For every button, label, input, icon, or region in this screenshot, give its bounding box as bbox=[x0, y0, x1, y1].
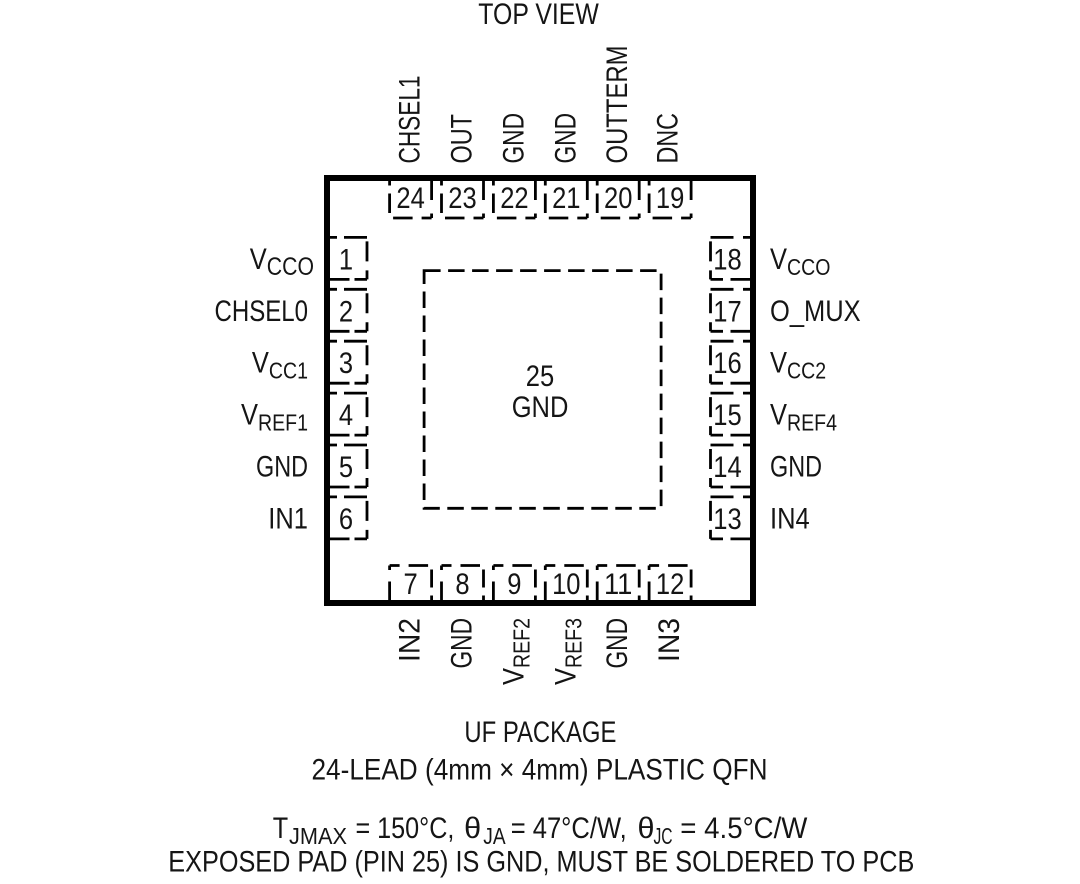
svg-text:GND: GND bbox=[549, 113, 582, 164]
svg-text:7: 7 bbox=[404, 568, 418, 601]
svg-text:GND: GND bbox=[512, 391, 569, 424]
svg-text:V: V bbox=[241, 399, 258, 432]
svg-text:18: 18 bbox=[713, 243, 741, 276]
svg-text:REF4: REF4 bbox=[787, 410, 837, 436]
svg-text:1: 1 bbox=[339, 243, 353, 276]
svg-text:16: 16 bbox=[713, 347, 741, 380]
svg-text:GND: GND bbox=[446, 618, 479, 669]
svg-text:12: 12 bbox=[656, 568, 684, 601]
svg-text:24-LEAD (4mm × 4mm) PLASTIC QF: 24-LEAD (4mm × 4mm) PLASTIC QFN bbox=[312, 754, 768, 787]
svg-text:OUTTERM: OUTTERM bbox=[601, 46, 634, 164]
svg-text:GND: GND bbox=[601, 618, 634, 669]
svg-text:3: 3 bbox=[339, 347, 353, 380]
svg-text:IN2: IN2 bbox=[394, 618, 427, 662]
svg-text:25: 25 bbox=[526, 360, 554, 393]
svg-text:4: 4 bbox=[339, 399, 353, 432]
svg-text:5: 5 bbox=[339, 451, 353, 484]
svg-text:IN1: IN1 bbox=[268, 502, 308, 535]
svg-text:V: V bbox=[549, 668, 582, 685]
svg-text:6: 6 bbox=[339, 503, 353, 536]
svg-text:CHSEL0: CHSEL0 bbox=[215, 295, 309, 328]
svg-text:REF3: REF3 bbox=[560, 618, 586, 668]
svg-text:V: V bbox=[770, 243, 787, 276]
svg-text:CC2: CC2 bbox=[787, 358, 826, 384]
svg-text:V: V bbox=[252, 347, 269, 380]
svg-text:14: 14 bbox=[713, 451, 741, 484]
svg-text:22: 22 bbox=[500, 182, 528, 215]
svg-text:V: V bbox=[497, 668, 530, 685]
svg-text:UF PACKAGE: UF PACKAGE bbox=[464, 716, 616, 749]
svg-text:TOP VIEW: TOP VIEW bbox=[478, 0, 599, 31]
svg-text:21: 21 bbox=[552, 182, 580, 215]
svg-text:T: T bbox=[273, 812, 288, 845]
svg-text:V: V bbox=[250, 243, 267, 276]
svg-text:GND: GND bbox=[497, 113, 530, 164]
svg-text:V: V bbox=[770, 399, 787, 432]
svg-text:OUT: OUT bbox=[446, 114, 479, 164]
svg-text:IN3: IN3 bbox=[653, 618, 686, 662]
svg-text:11: 11 bbox=[604, 568, 632, 601]
svg-text:CCO: CCO bbox=[267, 253, 314, 281]
svg-text:CHSEL1: CHSEL1 bbox=[394, 76, 427, 164]
svg-text:V: V bbox=[770, 347, 787, 380]
svg-text:EXPOSED PAD (PIN 25) IS GND, M: EXPOSED PAD (PIN 25) IS GND, MUST BE SOL… bbox=[168, 845, 914, 878]
svg-text:19: 19 bbox=[656, 182, 684, 215]
svg-text:= 150°C,: = 150°C, bbox=[356, 812, 455, 845]
svg-text:9: 9 bbox=[507, 568, 521, 601]
svg-text:17: 17 bbox=[713, 295, 741, 328]
svg-text:15: 15 bbox=[713, 399, 741, 432]
svg-text:8: 8 bbox=[455, 568, 469, 601]
svg-text:O_MUX: O_MUX bbox=[770, 295, 861, 328]
svg-text:23: 23 bbox=[448, 182, 476, 215]
svg-text:2: 2 bbox=[339, 295, 353, 328]
svg-text:13: 13 bbox=[713, 503, 741, 536]
svg-text:10: 10 bbox=[552, 568, 580, 601]
svg-text:CC1: CC1 bbox=[269, 358, 308, 384]
svg-text:θ: θ bbox=[638, 812, 655, 845]
svg-text:IN4: IN4 bbox=[770, 502, 810, 535]
svg-text:24: 24 bbox=[396, 182, 424, 215]
svg-text:20: 20 bbox=[604, 182, 632, 215]
svg-text:GND: GND bbox=[770, 451, 822, 484]
svg-text:DNC: DNC bbox=[652, 113, 685, 164]
svg-text:CCO: CCO bbox=[787, 254, 830, 280]
svg-text:= 47°C/W,: = 47°C/W, bbox=[511, 812, 627, 845]
svg-text:REF1: REF1 bbox=[258, 410, 308, 436]
svg-text:θ: θ bbox=[464, 812, 481, 845]
svg-text:GND: GND bbox=[256, 451, 308, 484]
svg-text:= 4.5°C/W: = 4.5°C/W bbox=[680, 812, 808, 845]
svg-text:REF2: REF2 bbox=[508, 618, 534, 668]
